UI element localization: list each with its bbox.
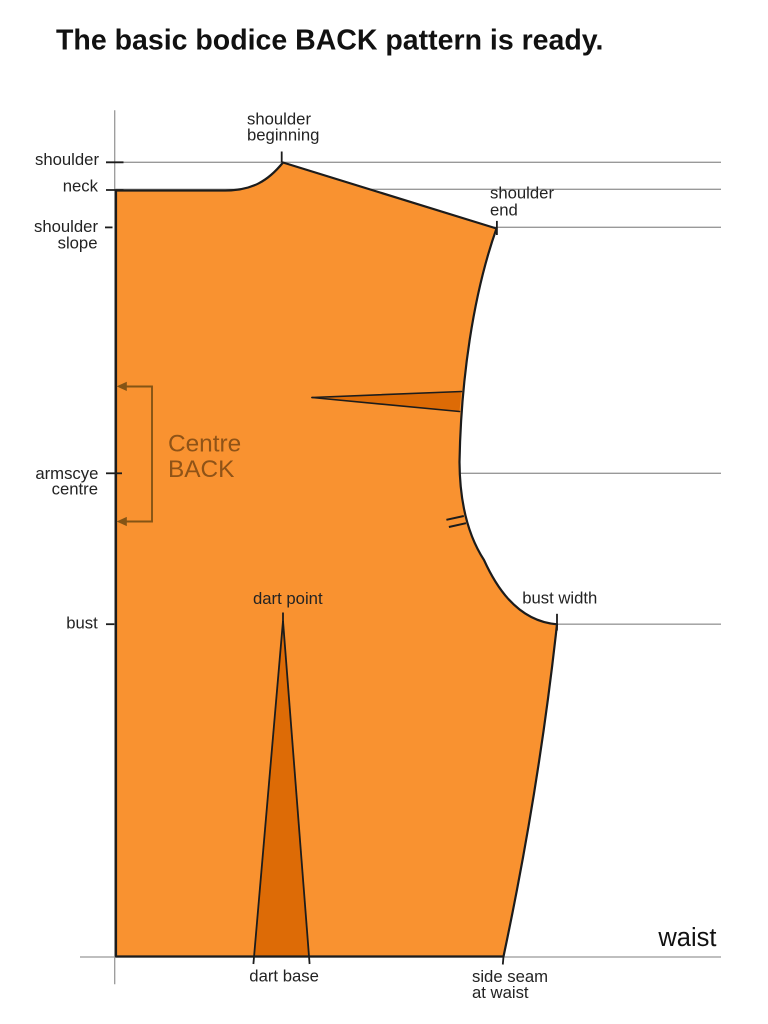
svg-text:beginning: beginning (247, 126, 319, 145)
svg-text:centre: centre (52, 480, 98, 499)
svg-text:shoulder: shoulder (35, 150, 99, 169)
svg-text:The basic bodice BACK pattern: The basic bodice BACK pattern is ready. (56, 25, 603, 57)
svg-text:waist: waist (657, 924, 716, 952)
svg-text:end: end (490, 201, 518, 220)
svg-text:shoulder: shoulder (490, 183, 554, 202)
svg-text:bust width: bust width (522, 589, 597, 608)
svg-text:neck: neck (63, 177, 99, 196)
svg-text:BACK: BACK (168, 456, 234, 483)
svg-text:Centre: Centre (168, 430, 241, 457)
svg-text:at waist: at waist (472, 983, 529, 1002)
svg-text:dart point: dart point (253, 589, 323, 608)
svg-text:bust: bust (66, 614, 98, 633)
svg-text:slope: slope (58, 233, 98, 252)
svg-text:dart base: dart base (249, 967, 319, 986)
